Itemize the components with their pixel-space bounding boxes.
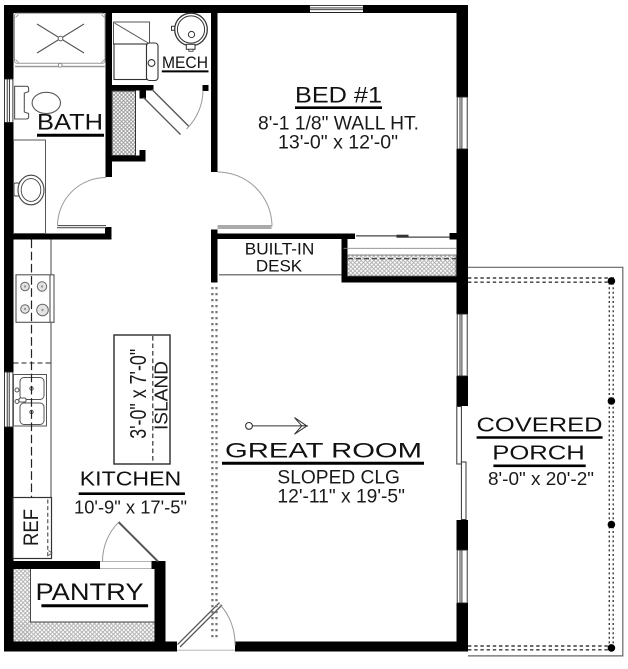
svg-text:8'-1 1/8" WALL HT.: 8'-1 1/8" WALL HT.	[258, 114, 419, 135]
svg-text:12'-11" x 19'-5": 12'-11" x 19'-5"	[277, 487, 405, 508]
svg-text:PANTRY: PANTRY	[36, 579, 144, 606]
svg-text:ISLAND: ISLAND	[152, 361, 172, 430]
svg-text:REF: REF	[20, 509, 43, 546]
svg-text:8'-0" x 20'-2": 8'-0" x 20'-2"	[488, 469, 594, 489]
svg-text:BED #1: BED #1	[295, 83, 382, 108]
svg-text:BATH: BATH	[37, 110, 103, 135]
svg-text:PORCH: PORCH	[492, 443, 585, 465]
svg-text:KITCHEN: KITCHEN	[80, 469, 182, 491]
svg-text:GREAT ROOM: GREAT ROOM	[225, 439, 422, 463]
svg-text:MECH: MECH	[162, 53, 208, 72]
svg-text:10'-9" x 17'-5": 10'-9" x 17'-5"	[74, 498, 187, 518]
svg-text:SLOPED CLG: SLOPED CLG	[277, 468, 400, 489]
svg-text:13'-0" x 12'-0": 13'-0" x 12'-0"	[278, 133, 398, 154]
svg-text:COVERED: COVERED	[477, 415, 603, 437]
svg-text:3'-0" x 7'-0": 3'-0" x 7'-0"	[125, 349, 151, 439]
svg-text:DESK: DESK	[256, 257, 303, 276]
